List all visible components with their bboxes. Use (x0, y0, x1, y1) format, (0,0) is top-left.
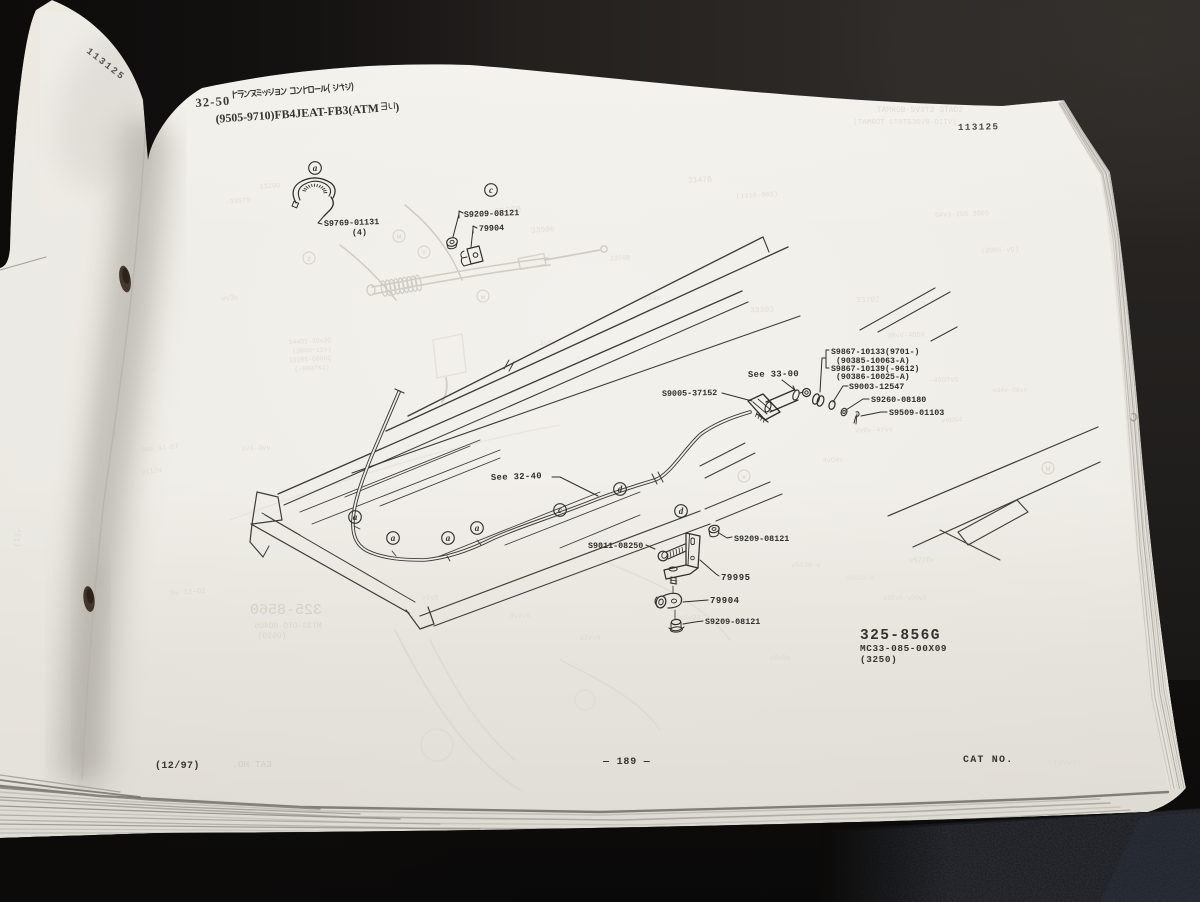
svg-text:S9260-08180: S9260-08180 (871, 395, 926, 405)
svg-text:S9209-08121: S9209-08121 (705, 617, 760, 627)
svg-text:(2O0S-vO): (2O0S-vO) (981, 246, 1019, 255)
svg-text:S9209-08121: S9209-08121 (464, 208, 520, 220)
svg-text:a: a (391, 533, 396, 543)
svg-text:c: c (558, 505, 562, 515)
svg-text:-45O7vS: -45O7vS (929, 376, 959, 385)
svg-text:79904: 79904 (479, 223, 504, 234)
svg-text:S9011-08250: S9011-08250 (588, 541, 643, 551)
svg-text:(4): (4) (352, 227, 367, 238)
svg-text:(1vvvv): (1vvvv) (1048, 759, 1082, 768)
svg-text:79995: 79995 (721, 573, 751, 583)
svg-text:MT33-OTO-0O4O5: MT33-OTO-0O4O5 (254, 622, 321, 631)
svg-text:a: a (353, 512, 358, 522)
svg-text:a: a (313, 163, 318, 173)
svg-text:TAMROB-SV3T2 3TAD2: TAMROB-SV3T2 3TAD2 (877, 106, 964, 115)
svg-text:a: a (475, 523, 480, 533)
svg-text:vvOv-47vv: vvOv-47vv (855, 426, 893, 435)
svg-text:v5520-v: v5520-v (791, 562, 821, 571)
svg-text:33702: 33702 (856, 296, 881, 306)
svg-text:c: c (489, 185, 493, 195)
svg-text:(12/97): (12/97) (155, 760, 200, 772)
svg-text:w: w (481, 294, 486, 302)
svg-text:(3250): (3250) (860, 654, 897, 665)
svg-text:79904: 79904 (710, 596, 740, 606)
svg-text:CAT NO.: CAT NO. (963, 755, 1013, 766)
svg-text:v6v0v: v6v0v (769, 655, 790, 663)
svg-text:3v3vO: 3v3vO (509, 613, 530, 621)
svg-text:— 189 —: — 189 — (602, 757, 651, 768)
svg-text:325-8560: 325-8560 (250, 602, 322, 619)
svg-text:(O5S0): (O5S0) (258, 632, 287, 641)
svg-text:3vSv: 3vSv (539, 340, 556, 349)
svg-text:MC33-085-00X09: MC33-085-00X09 (860, 643, 947, 654)
svg-text:S9005-37152: S9005-37152 (662, 388, 717, 399)
svg-text:4vO4v: 4vO4v (822, 457, 843, 466)
svg-text:113125: 113125 (958, 121, 1000, 133)
svg-text:33S6B: 33S6B (609, 254, 630, 263)
svg-text:33303: 33303 (750, 306, 775, 316)
svg-text:v: v (742, 474, 747, 482)
svg-text:See 33-00: See 33-00 (748, 369, 799, 380)
svg-text:33vv0: 33vv0 (579, 635, 600, 643)
svg-text:(90386-10025-A): (90386-10025-A) (836, 372, 910, 382)
svg-text:Y: Y (422, 250, 427, 258)
svg-text:3BvV-4O50: 3BvV-4O50 (887, 331, 925, 340)
svg-text:W: W (397, 234, 402, 242)
svg-text:v34v-O6vv: v34v-O6vv (992, 387, 1027, 395)
svg-text:3147B: 3147B (688, 175, 713, 185)
svg-text:S9509-01103: S9509-01103 (889, 408, 944, 418)
svg-text:v35vO-v5OvO: v35vO-v5OvO (884, 595, 927, 602)
svg-text:33506: 33506 (531, 225, 556, 236)
svg-text:v3v5: v3v5 (422, 595, 439, 603)
svg-text:See 32-40: See 32-40 (491, 471, 542, 483)
svg-text:S9209-08121: S9209-08121 (734, 534, 789, 544)
svg-text:z: z (307, 256, 312, 264)
svg-text:325-856G: 325-856G (860, 628, 941, 644)
svg-text:32-50: 32-50 (195, 94, 231, 110)
svg-text:d: d (679, 506, 684, 516)
svg-text:3v3-3vv: 3v3-3vv (241, 444, 271, 453)
svg-text:S9003-12547: S9003-12547 (849, 382, 904, 392)
svg-text:S9867-10133(9701-): S9867-10133(9701-) (831, 347, 919, 357)
svg-text:v6O54: v6O54 (941, 417, 962, 426)
svg-text:W: W (1046, 466, 1051, 474)
svg-text:33v2O-v: 33v2O-v (846, 575, 873, 582)
svg-text:.OH TA3: .OH TA3 (232, 759, 272, 770)
svg-text:v577Ov: v577Ov (909, 557, 934, 565)
svg-text:a: a (446, 533, 451, 543)
svg-text:d: d (618, 484, 623, 494)
svg-text:(TAMROT CTATS3GVB-OIIV): (TAMROT CTATS3GVB-OIIV) (853, 119, 957, 127)
svg-text:vv3v: vv3v (221, 294, 238, 303)
